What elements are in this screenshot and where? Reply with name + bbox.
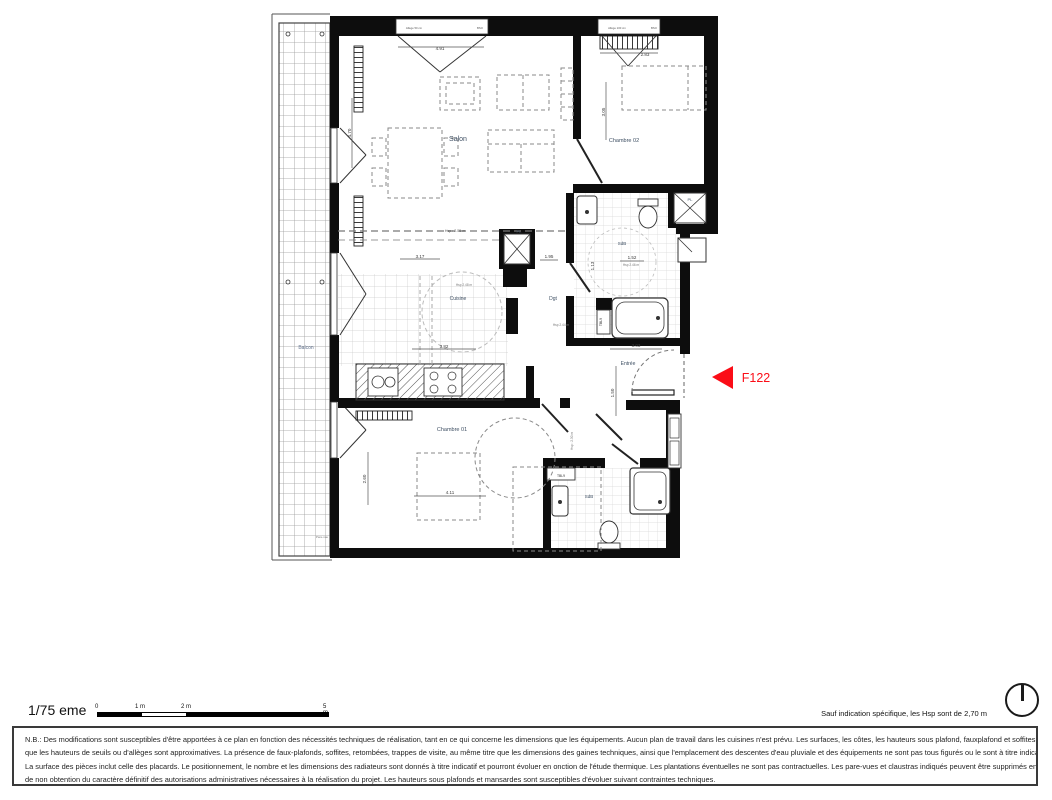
room-label-cuisine: Cuisine [450,296,467,302]
toilet-2-bowl [600,521,618,543]
label-tbl9-1: TBL9 [599,318,603,326]
bed-chambre01 [417,453,480,520]
bed-chambre02 [622,66,706,110]
toilet-1-tank [638,199,658,206]
kitchen-counter [356,364,504,400]
dim-dgt: 1.95 [545,254,554,259]
chair [372,168,386,186]
note-hsp-chambre01: Hsp : 2.30 m [570,432,574,450]
note-hsp-salon: Hsp : 2.55 m [445,229,465,233]
scale-tick-0: 0 [95,704,98,710]
chair [372,138,386,156]
entry-door-swing [632,350,674,392]
unit-id-label: F122 [742,371,771,385]
scale-ratio-label: 1/75 eme [28,702,86,718]
north-compass-icon [1005,683,1039,717]
dim-salon-depth: 4.70 [347,128,352,137]
note-bso-chambre02: BSO [651,26,658,30]
disclaimer-line: La surface des pièces inclut celle des p… [25,760,1025,773]
dining-table [388,128,442,198]
note-pare-vue: Pare-vue [316,535,329,539]
plan-sheet: SalonChambre 02CuisineDgtEntréeChambre 0… [0,0,1052,800]
dim-chambre02-depth: 3.05 [601,107,606,116]
entry-door-leaf [632,390,674,395]
room-label-balcon: Balcon [298,345,314,351]
dim-entree-h: 1.50 [610,388,615,397]
room-label-dgt: Dgt [549,296,557,302]
scale-bar-segment [97,712,141,717]
dim-sdb1: 1.52 [628,255,637,260]
dim-chambre02-width: 2.83 [641,52,650,57]
washing-machine [678,238,706,262]
note-hsp-cuisine: Hsp 2.48 m [456,283,473,287]
dim-sdb1-v: 1.13 [590,261,595,270]
note-hsp-sdb1: Hsp 2.46 m [623,263,640,267]
floor-plan-drawing: SalonChambre 02CuisineDgtEntréeChambre 0… [0,0,1052,800]
label-tbl9-2: TBL9 [557,474,565,478]
compass-needle [1021,684,1024,701]
note-allege-salon: Allège 50 cm [406,26,423,30]
dim-salon-width: 4.91 [436,46,445,51]
dim-chambre01-w: 4.11 [446,490,455,495]
scale-tick-1: 1 m [135,704,145,710]
room-label-entree: Entrée [621,361,636,367]
balcony [272,14,332,560]
note-allege-chambre02: Allège 100 cm [608,26,626,30]
disclaimer-line: que les hauteurs de seuils ou d'allèges … [25,746,1025,759]
cuisine-tiles [338,274,508,366]
closet-label-pl-1: PL [688,197,694,202]
dim-entree-w: 3.03 [632,343,641,348]
room-label-sdb-1: SdB [618,241,627,246]
note-hsp-dgt: Hsp 2.44 m [553,323,570,327]
disclaimer-line: N.B.: Des modifications sont susceptible… [25,733,1025,746]
scale-bar-segment [187,712,329,717]
chair [444,168,458,186]
entry-door [632,350,684,398]
scale-bar-segment [141,712,187,717]
disclaimer-line: de non obtention du caractère définitif … [25,773,1025,786]
hsp-note: Sauf indication spécifique, les Hsp sont… [821,709,987,718]
chambre02-radiator [600,36,658,49]
kitchen-sink [368,368,398,396]
unit-arrow-icon [712,366,733,389]
note-bso-salon: BSO [477,26,484,30]
toilet-1-bowl [639,206,657,228]
disclaimer-box: N.B.: Des modifications sont susceptible… [12,726,1038,786]
kitchen-hob [424,368,462,396]
closet-label-pl-2: PL [517,229,523,234]
balcony-decking [279,23,330,556]
dim-cuisine-1: 3.17 [416,254,425,259]
dim-chambre01-h: 2.60 [362,474,367,483]
room-label-sdb-2: SdB [585,494,594,499]
dim-cuisine-2: 3.82 [440,344,449,349]
room-label-chambre-02: Chambre 02 [609,138,639,144]
scale-bar: 0 1 m 2 m 5 m [97,712,329,718]
room-label-chambre-01: Chambre 01 [437,427,467,433]
room-label-salon: Salon [449,136,467,143]
scale-tick-2: 2 m [181,704,191,710]
